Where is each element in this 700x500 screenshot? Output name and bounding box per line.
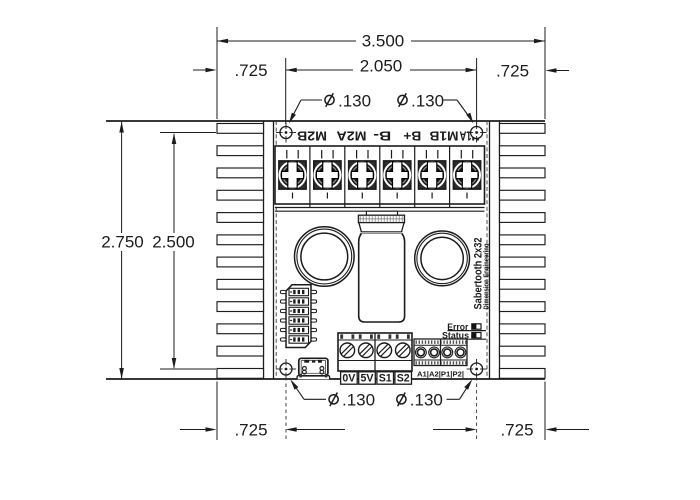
svg-text:5V: 5V (361, 373, 374, 385)
svg-text:.725: .725 (234, 421, 267, 440)
svg-text:B+: B+ (403, 128, 421, 143)
svg-text:M2B: M2B (297, 128, 327, 143)
svg-text:.130: .130 (338, 91, 371, 110)
svg-text:Dimension Engineering: Dimension Engineering (481, 244, 490, 310)
svg-text:0V: 0V (342, 373, 355, 385)
svg-text:B-: B- (373, 128, 391, 143)
svg-text:M1B: M1B (430, 128, 459, 143)
svg-text:M2A: M2A (337, 128, 367, 143)
svg-text:S2: S2 (397, 373, 410, 385)
svg-text:.130: .130 (342, 391, 375, 410)
svg-text:.130: .130 (410, 391, 443, 410)
svg-text:2.500: 2.500 (152, 233, 195, 252)
svg-text:.725: .725 (496, 62, 529, 81)
svg-text:3.500: 3.500 (362, 32, 405, 51)
svg-text:2.750: 2.750 (101, 233, 144, 252)
svg-text:S1: S1 (379, 373, 392, 385)
svg-text:.130: .130 (411, 91, 444, 110)
svg-text:A1|A2|P1|P2|: A1|A2|P1|P2| (417, 370, 464, 379)
svg-text:.725: .725 (500, 421, 533, 440)
svg-text:2.050: 2.050 (360, 57, 403, 76)
svg-text:.725: .725 (234, 61, 267, 80)
